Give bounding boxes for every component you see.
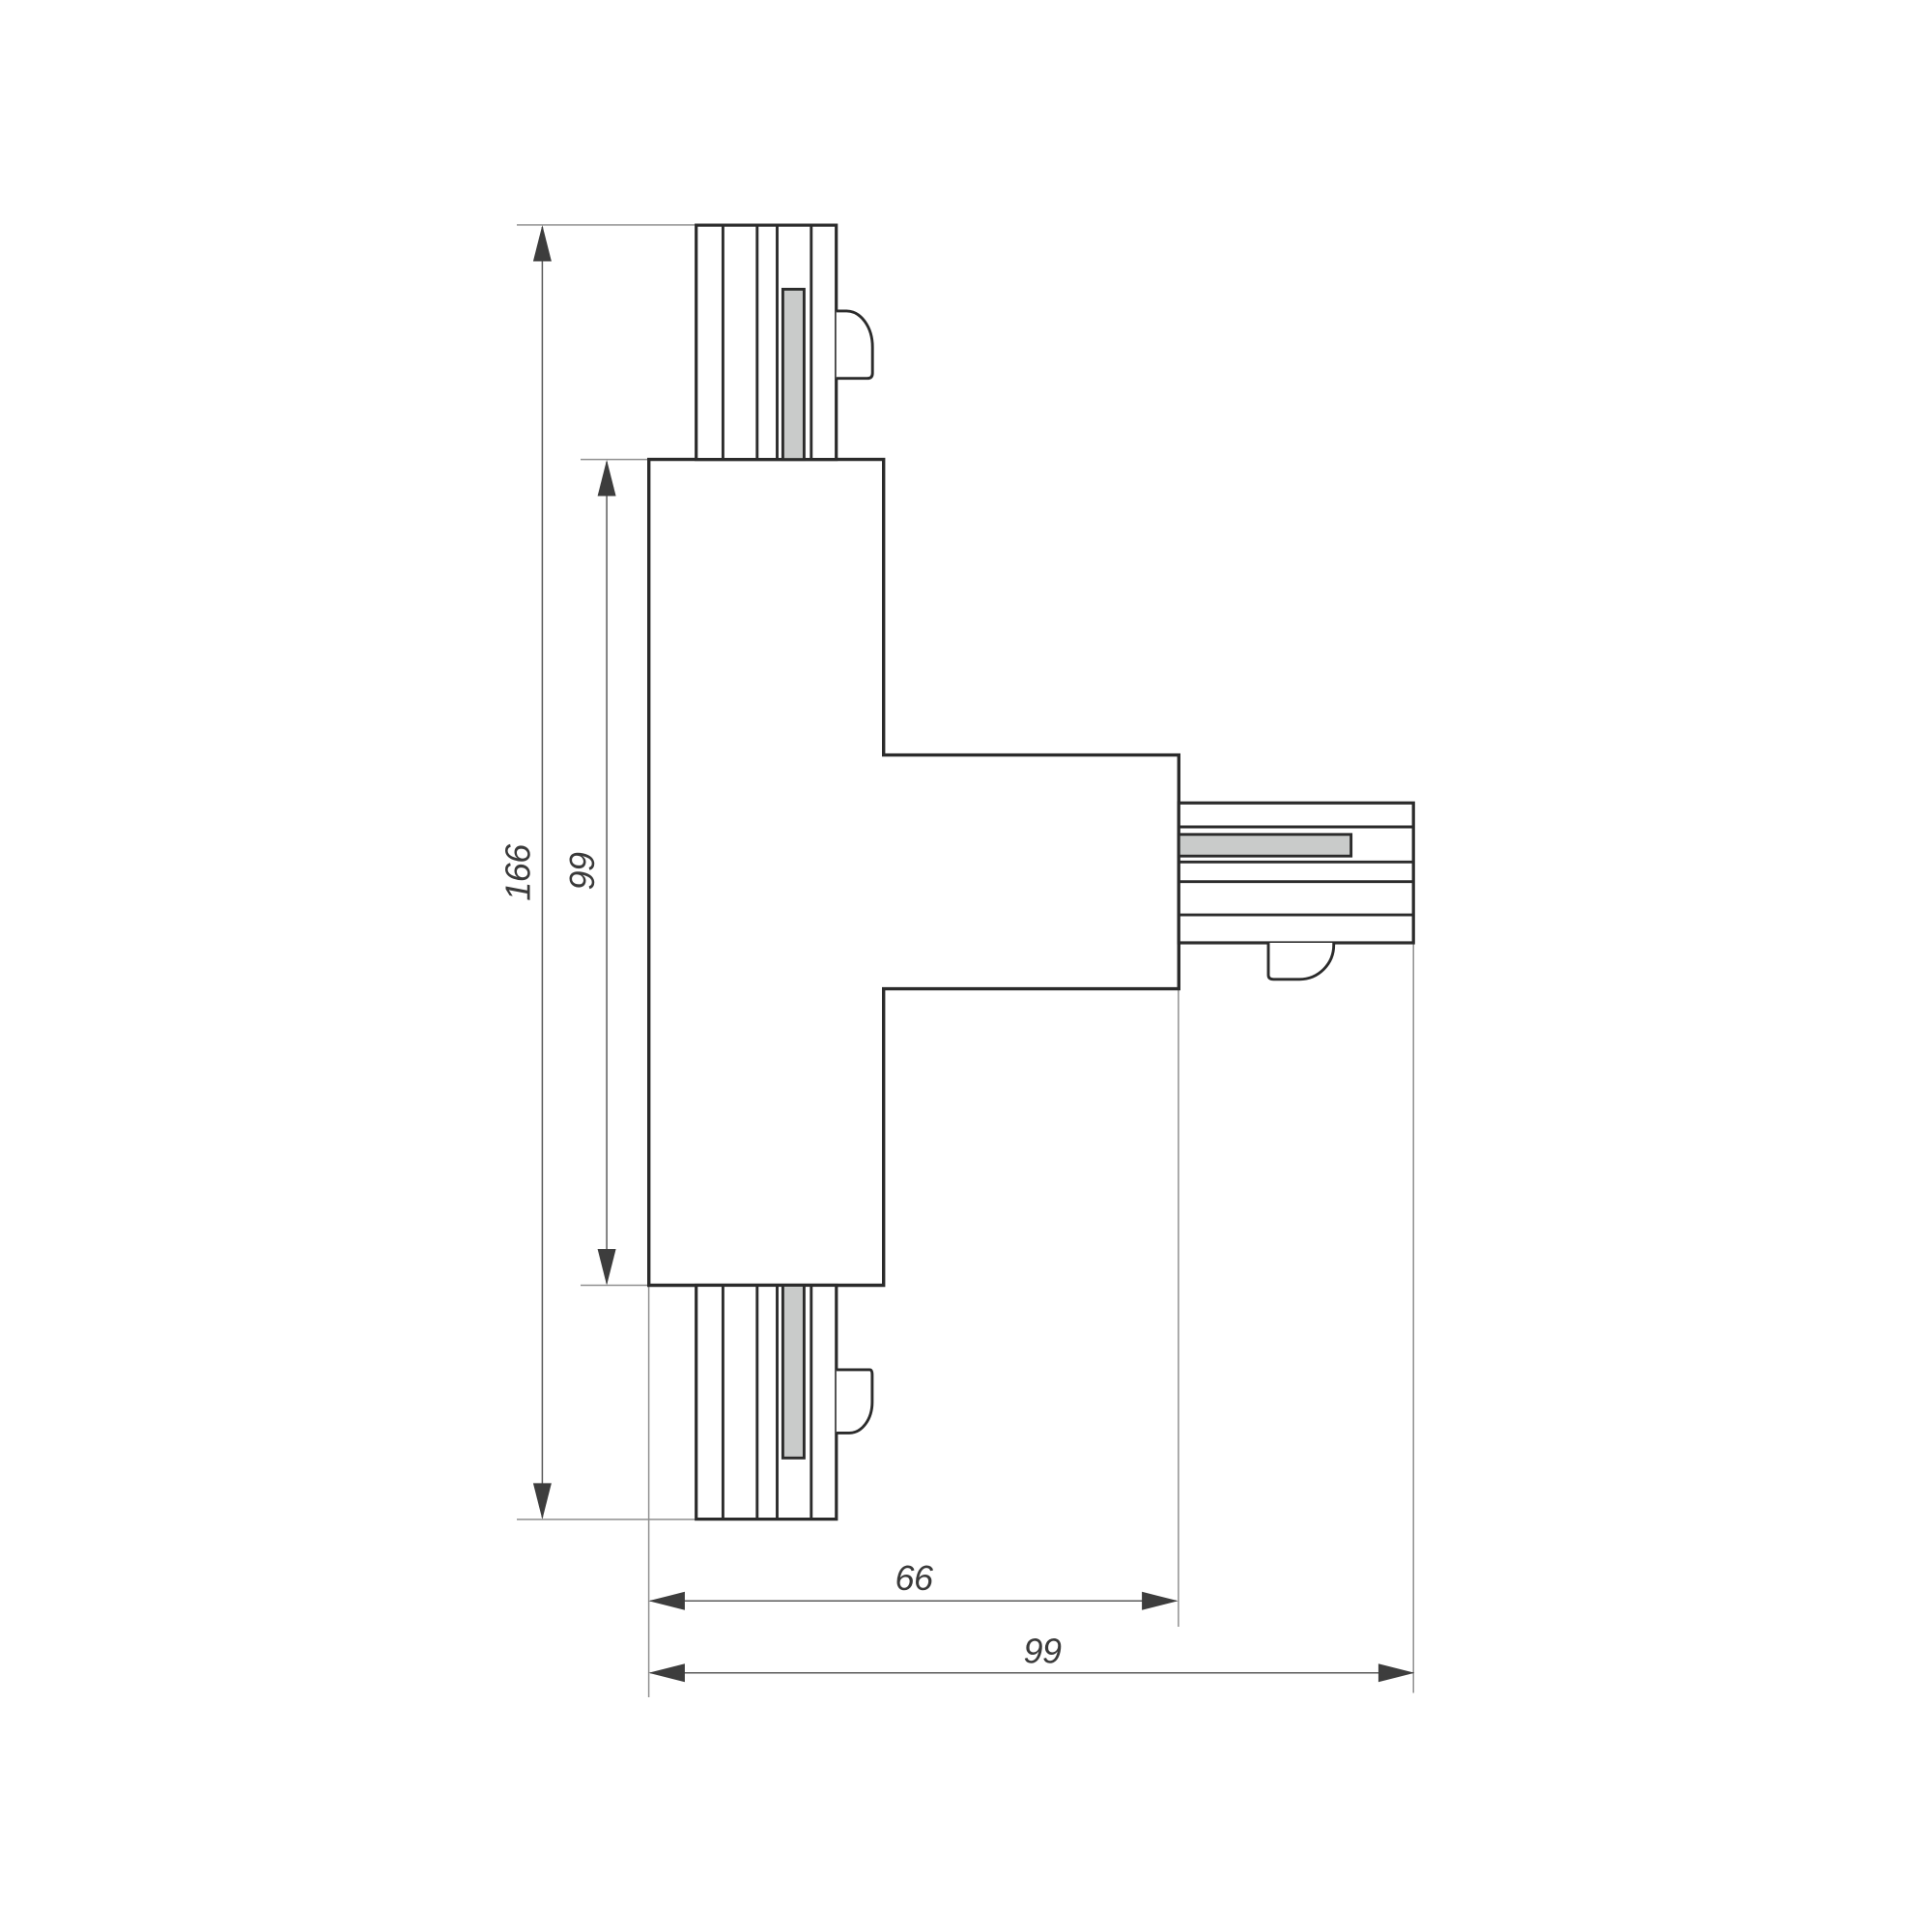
svg-text:66: 66 xyxy=(895,1558,934,1598)
svg-text:99: 99 xyxy=(1023,1632,1062,1671)
svg-text:99: 99 xyxy=(562,852,602,891)
svg-text:166: 166 xyxy=(497,843,537,901)
